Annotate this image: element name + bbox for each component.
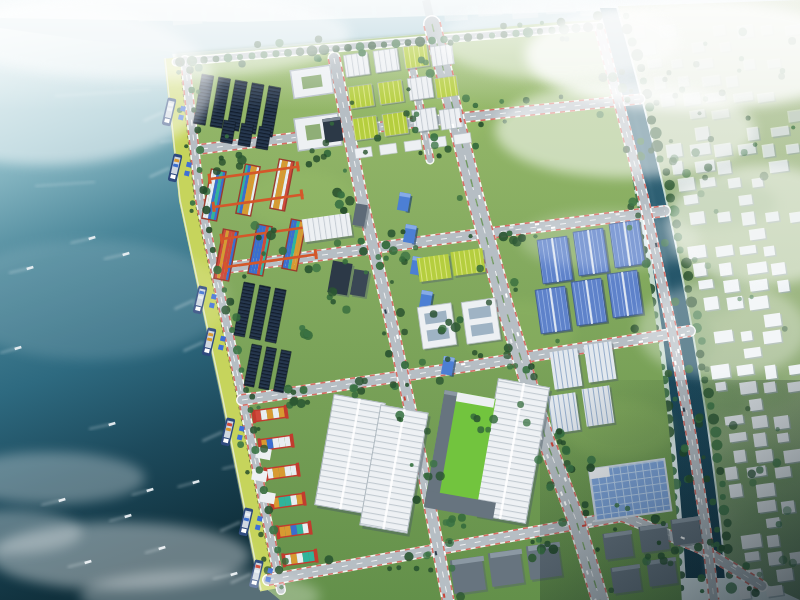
aerial-rendering-industrial-port-masterplan [0,0,800,600]
rendering-canvas [0,0,800,600]
